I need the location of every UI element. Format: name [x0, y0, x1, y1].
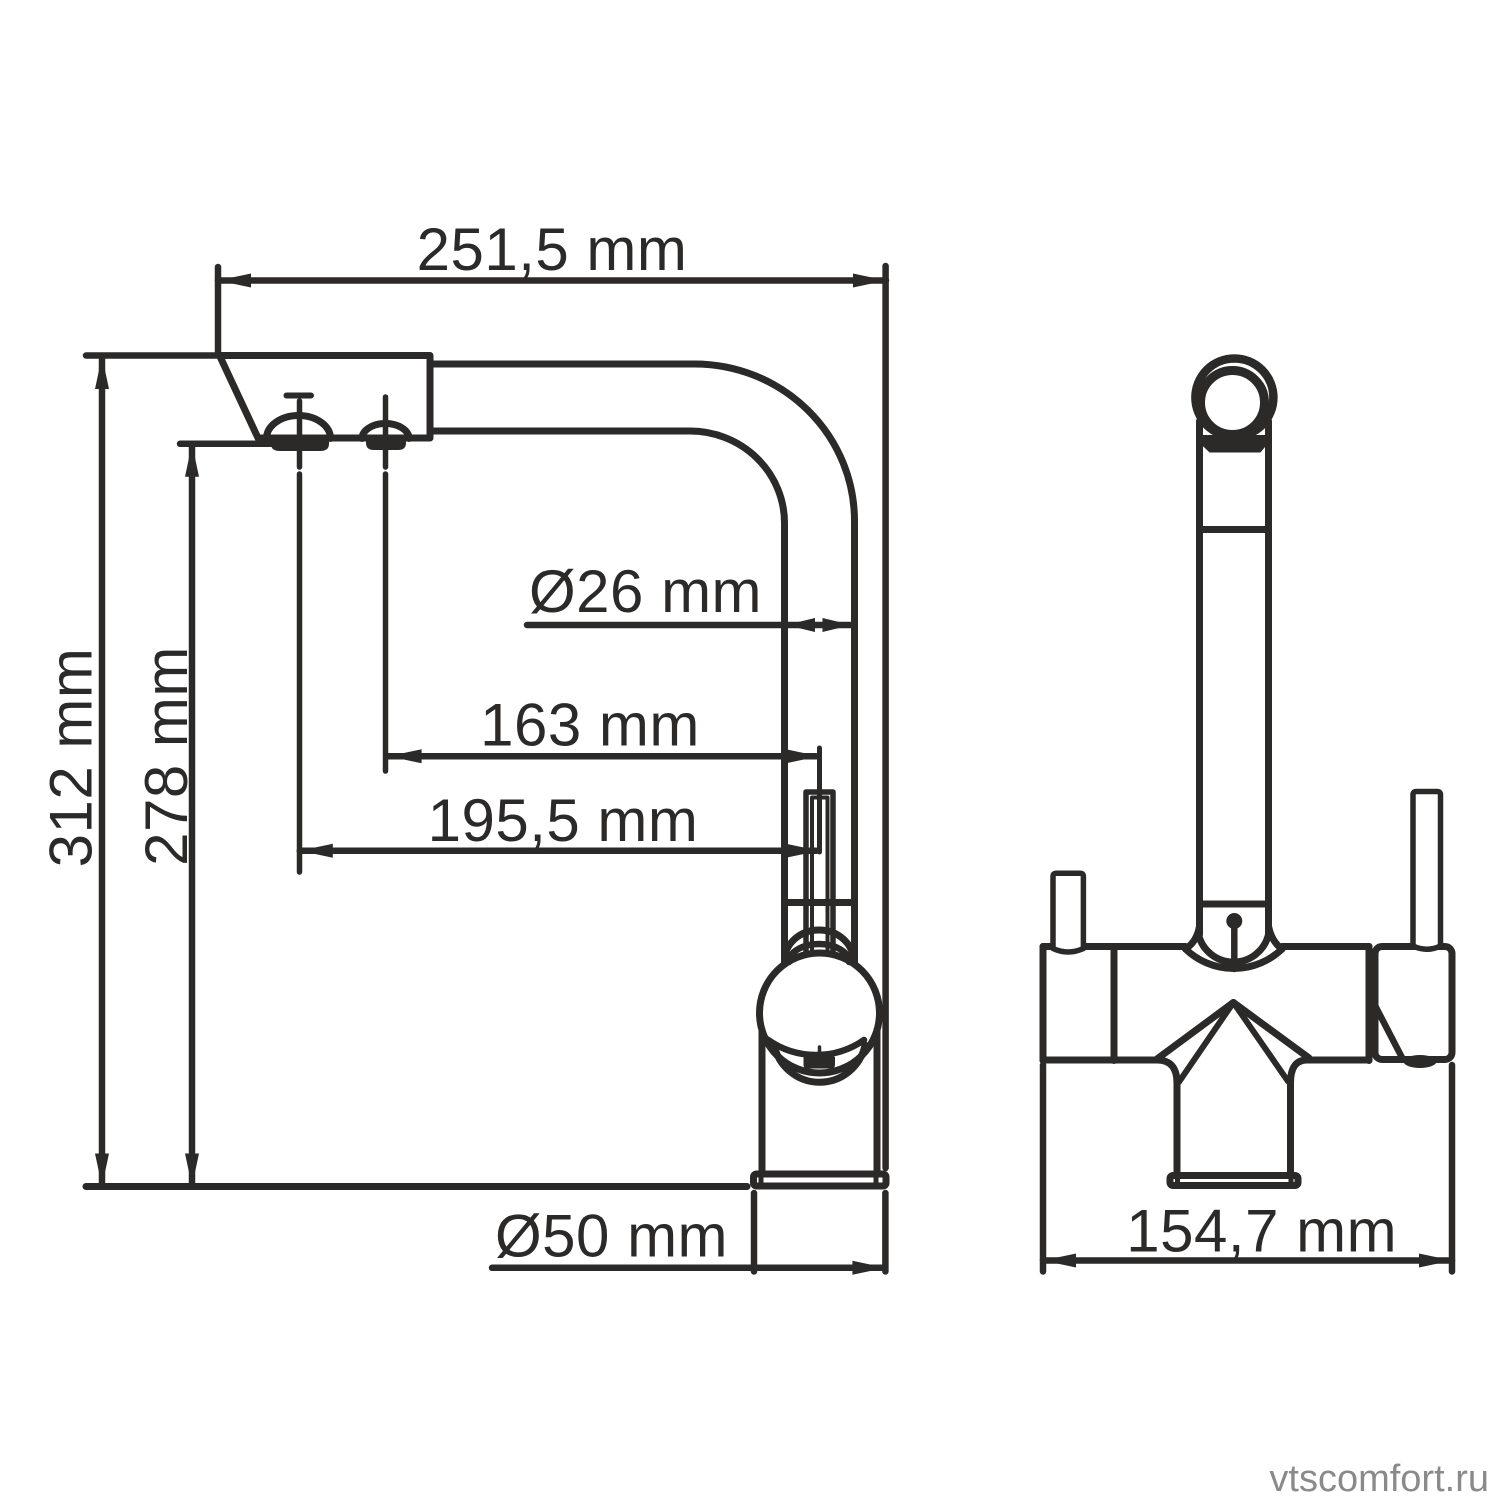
svg-text:312 mm: 312 mm — [38, 648, 105, 868]
svg-text:195,5 mm: 195,5 mm — [428, 787, 699, 854]
svg-text:154,7 mm: 154,7 mm — [1126, 1198, 1397, 1265]
svg-text:251,5 mm: 251,5 mm — [417, 216, 688, 283]
svg-text:278 mm: 278 mm — [133, 646, 200, 866]
svg-text:163 mm: 163 mm — [480, 692, 700, 759]
svg-text:Ø50 mm: Ø50 mm — [495, 1203, 728, 1270]
svg-text:vtscomfort.ru: vtscomfort.ru — [1269, 1458, 1489, 1500]
svg-text:Ø26 mm: Ø26 mm — [529, 558, 762, 625]
